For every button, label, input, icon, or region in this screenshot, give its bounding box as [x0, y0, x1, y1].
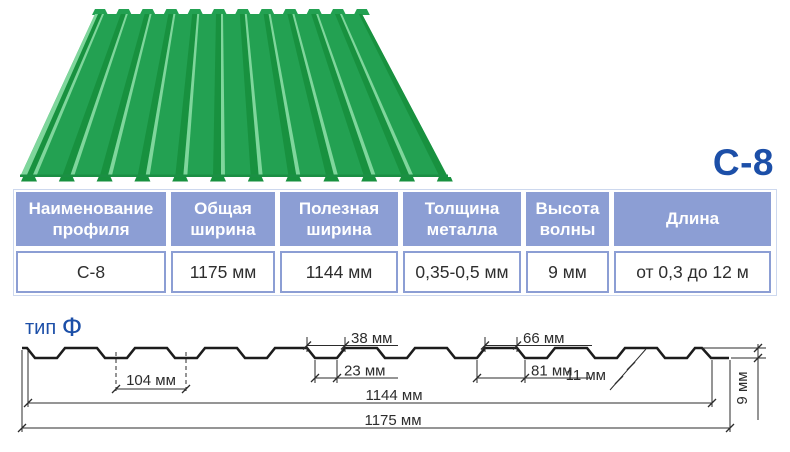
spec-sheet-page: С-8 Наименование профиля Общая ширина По…	[0, 0, 790, 452]
profile-code-title: С-8	[713, 144, 774, 181]
value-profile-name: С-8	[16, 251, 166, 293]
col-header-profile-name: Наименование профиля	[16, 192, 166, 246]
dim-label-edge: 11 мм	[566, 367, 606, 384]
sheet-bottom-tabs	[21, 177, 453, 182]
dim-label-flat-width: 66 мм	[523, 330, 564, 347]
spec-table: Наименование профиля Общая ширина Полезн…	[13, 189, 777, 296]
dim-label-height: 9 мм	[734, 371, 751, 404]
col-header-useful-width: Полезная ширина	[280, 192, 398, 246]
corrugated-sheet-image	[0, 0, 470, 190]
dim-label-rib-top-width: 38 мм	[351, 330, 392, 347]
value-metal-thickness: 0,35-0,5 мм	[403, 251, 521, 293]
dim-label-overall-width: 1175 мм	[364, 412, 421, 429]
dim-label-useful-width: 1144 мм	[365, 387, 422, 404]
dim-label-rib-bottom-width: 23 мм	[344, 363, 385, 380]
sheet-bottom-edge	[20, 175, 448, 178]
profile-outline	[22, 348, 729, 358]
col-header-length: Длина	[614, 192, 771, 246]
value-wave-height: 9 мм	[526, 251, 609, 293]
col-header-overall-width: Общая ширина	[171, 192, 275, 246]
cross-section-drawing: 38 мм 23 мм 66 мм 81 мм 104 мм 11 мм 114…	[0, 300, 790, 452]
col-header-metal-thickness: Толщина металла	[403, 192, 521, 246]
value-length: от 0,3 до 12 м	[614, 251, 771, 293]
value-useful-width: 1144 мм	[280, 251, 398, 293]
value-overall-width: 1175 мм	[171, 251, 275, 293]
col-header-wave-height: Высота волны	[526, 192, 609, 246]
dim-label-rib-pitch: 104 мм	[126, 372, 176, 389]
